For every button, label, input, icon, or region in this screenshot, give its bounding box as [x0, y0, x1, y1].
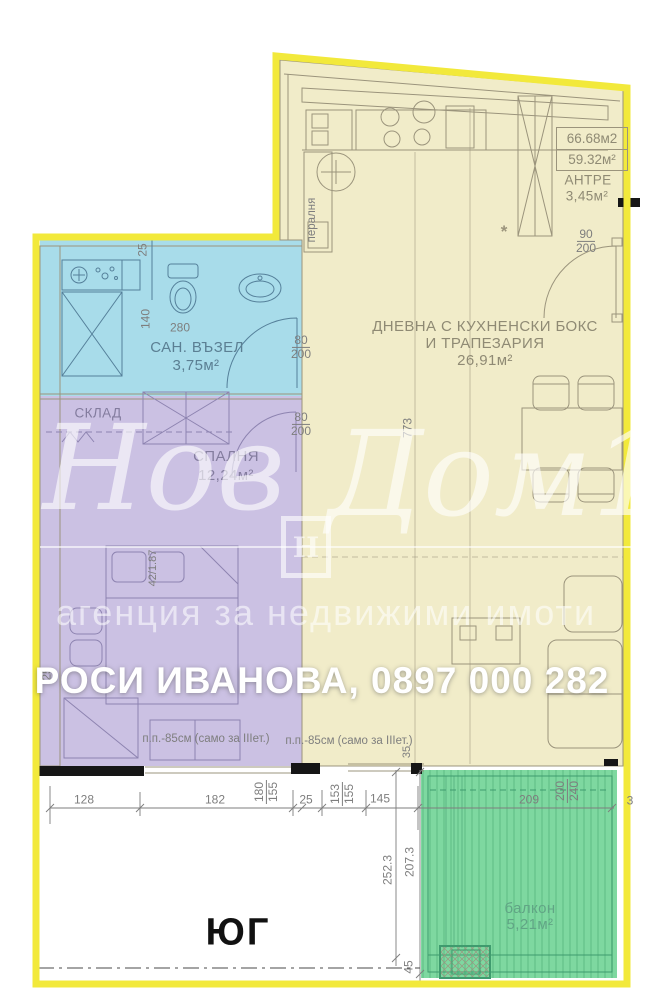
dimension-label: 80200 — [289, 411, 313, 437]
dimension-label: 140 — [140, 309, 153, 329]
watermark-word-2: Дом1 — [327, 405, 660, 543]
dimension-label: 25 — [137, 243, 150, 256]
dimension-label: 153155 — [329, 782, 355, 806]
dimension-label: 280 — [170, 322, 190, 335]
dimension-label: 145 — [370, 793, 390, 806]
note-label: п.п.-85см (само за IIIет.) — [142, 733, 269, 745]
dimension-label: 180155 — [253, 780, 279, 804]
dimension-label: 182 — [205, 794, 225, 807]
note-label: п.п.-85см (само за IIIет.) — [285, 735, 412, 747]
dimension-label: 3 — [627, 795, 634, 808]
watermark-word-1: Нов — [43, 399, 286, 537]
dimension-label: 25 — [299, 794, 312, 807]
south-orientation-label: ЮГ — [206, 912, 271, 955]
note-label: пералня — [306, 198, 318, 243]
dimension-label: 128 — [74, 794, 94, 807]
dimension-label: 200240 — [554, 779, 580, 803]
dimension-label: 80200 — [289, 334, 313, 360]
dimension-label: 42/1.87 — [148, 550, 160, 587]
agent-contact-banner: РОСИ ИВАНОВА, 0897 000 282 — [35, 660, 610, 702]
floor-plan-page: 66.68м2 59.32м² АНТРЕ 3,45м² ДНЕВНА С КУ… — [0, 0, 660, 1000]
dimension-label: 90200 — [574, 228, 598, 254]
dimension-label: * — [501, 223, 508, 241]
dimension-label: 45 — [403, 960, 416, 973]
dimension-label: 35 — [402, 746, 414, 758]
dimension-label: 209 — [519, 794, 539, 807]
dimension-label: 207.3 — [404, 847, 417, 877]
dimension-label: 252.3 — [382, 855, 395, 885]
watermark-underline — [40, 546, 652, 548]
watermark-tagline: агенция за недвижими имоти — [56, 592, 596, 634]
